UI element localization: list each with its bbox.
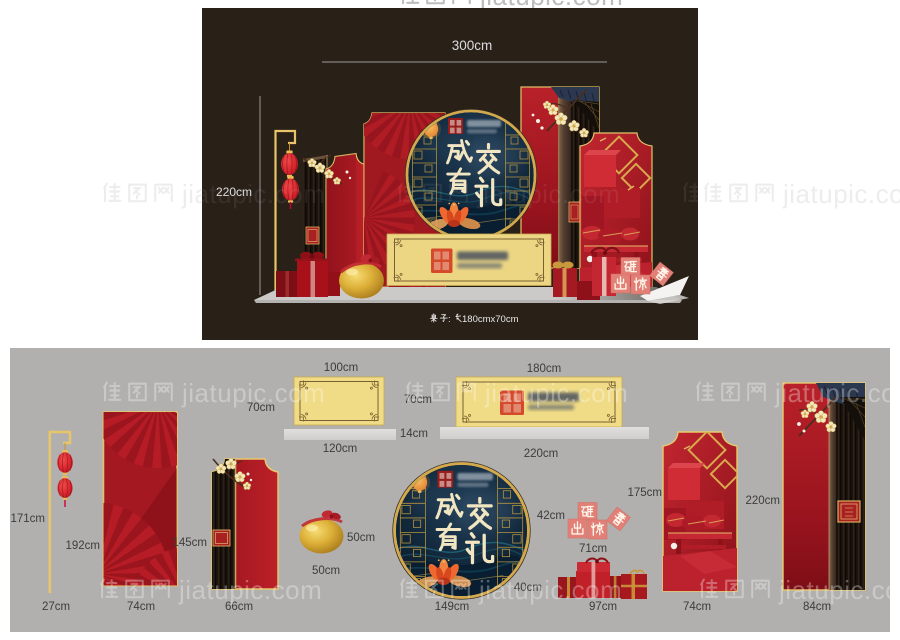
svg-text:180cmx70cm: 180cmx70cm <box>462 314 519 325</box>
svg-text:50cm: 50cm <box>347 532 375 544</box>
svg-text:74cm: 74cm <box>683 601 711 613</box>
svg-text:120cm: 120cm <box>323 443 358 455</box>
svg-text:171cm: 171cm <box>10 513 45 525</box>
svg-text:100cm: 100cm <box>324 362 359 374</box>
svg-text:14cm: 14cm <box>400 428 428 440</box>
svg-text:220cm: 220cm <box>524 448 559 460</box>
svg-text:149cm: 149cm <box>435 601 470 613</box>
svg-text:74cm: 74cm <box>127 601 155 613</box>
svg-text::: : <box>448 314 451 325</box>
svg-text:192cm: 192cm <box>65 540 100 552</box>
svg-text:27cm: 27cm <box>42 601 70 613</box>
svg-text:71cm: 71cm <box>579 543 607 555</box>
svg-text:145cm: 145cm <box>172 537 207 549</box>
svg-text:300cm: 300cm <box>452 38 493 53</box>
svg-text:220cm: 220cm <box>745 495 780 507</box>
svg-text:175cm: 175cm <box>627 487 662 499</box>
svg-text:180cm: 180cm <box>527 363 562 375</box>
svg-text:42cm: 42cm <box>537 510 565 522</box>
